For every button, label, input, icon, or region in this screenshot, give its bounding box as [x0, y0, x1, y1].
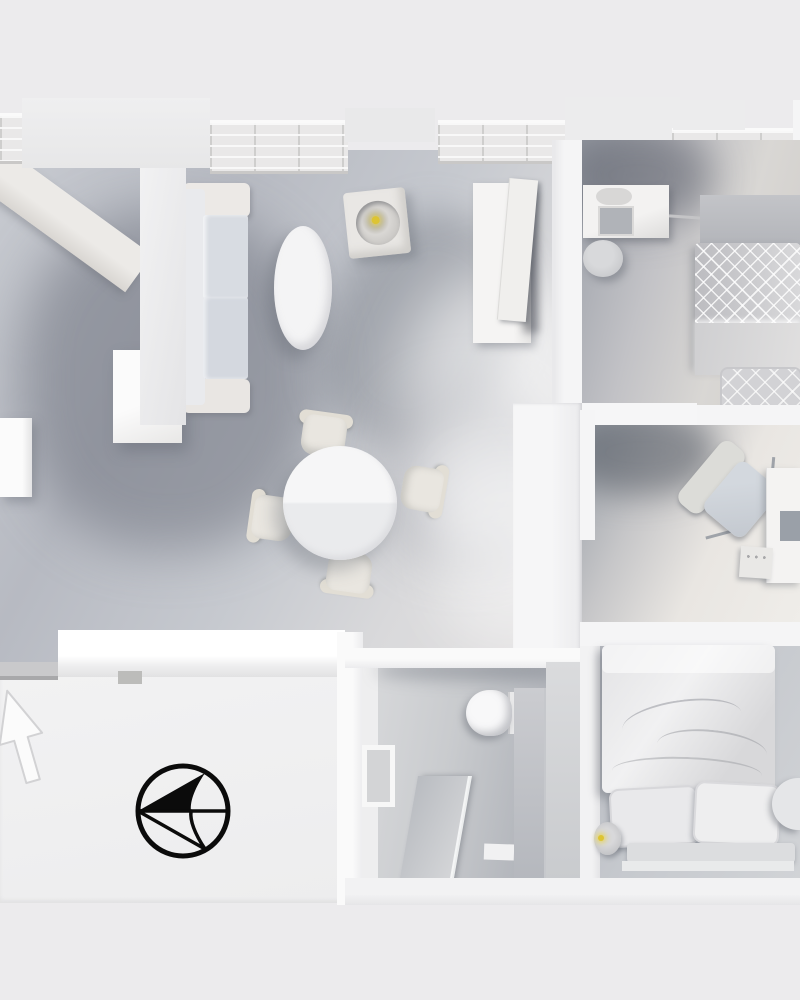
wardrobe: [473, 183, 545, 345]
wall-stub: [673, 100, 745, 130]
bedroom-top-floor: [582, 140, 800, 412]
duvet-fold: [602, 645, 775, 673]
dresser-screen: [598, 206, 634, 236]
sofa-cushion: [203, 297, 248, 379]
headboard: [700, 195, 800, 245]
dresser: [583, 185, 669, 238]
dining-table: [283, 446, 397, 560]
mirror-frame: [362, 745, 395, 807]
wall-corridor-lower: [513, 403, 582, 665]
bedside-lamp: [594, 822, 621, 855]
corridor-floor: [546, 662, 582, 880]
sofa-back: [183, 189, 205, 405]
window-sill: [0, 113, 22, 164]
wall-stub: [793, 100, 800, 140]
pillow: [609, 785, 701, 849]
bedroom-left-wall: [580, 622, 600, 905]
bed-base: [622, 861, 794, 871]
floor-plan-render: [0, 0, 800, 1000]
wall-notch: [118, 671, 142, 684]
bed-duvet: [602, 645, 777, 885]
wall-stub: [565, 97, 680, 141]
mattress-base: [627, 843, 795, 863]
laptop: [780, 511, 800, 541]
window-sill: [210, 120, 348, 174]
wall-stub: [345, 108, 435, 142]
sofa-cushion: [203, 215, 248, 299]
wall-bottom: [345, 878, 800, 905]
bedroom-top-wall: [580, 622, 800, 646]
pillow: [692, 781, 781, 847]
bathroom-right-wall: [514, 688, 544, 905]
lamp-glow: [598, 835, 604, 841]
north-compass-icon: [133, 761, 233, 861]
wall-hallway-right: [337, 632, 363, 905]
toilet-bowl: [466, 690, 512, 736]
wall-corridor-upper: [552, 140, 582, 412]
window-sill: [438, 120, 565, 164]
drawer-unit: [739, 546, 773, 579]
bed-quilted: [695, 195, 800, 412]
sofa: [183, 183, 253, 413]
study-floor: [582, 425, 800, 622]
bath-mat: [484, 843, 515, 860]
wall-left-column: [140, 150, 186, 425]
stool: [583, 240, 623, 277]
wall-study-left: [580, 410, 595, 540]
dresser-mirror: [596, 188, 632, 205]
dining-chair: [396, 458, 451, 519]
coffee-table: [274, 226, 332, 350]
wall-stub: [22, 98, 210, 168]
side-table: [343, 187, 412, 259]
chair-seat: [398, 464, 445, 514]
wall-hallway-top: [58, 630, 345, 677]
bedroom-bottom-floor: [580, 622, 800, 905]
kitchen-unit: [0, 418, 32, 497]
